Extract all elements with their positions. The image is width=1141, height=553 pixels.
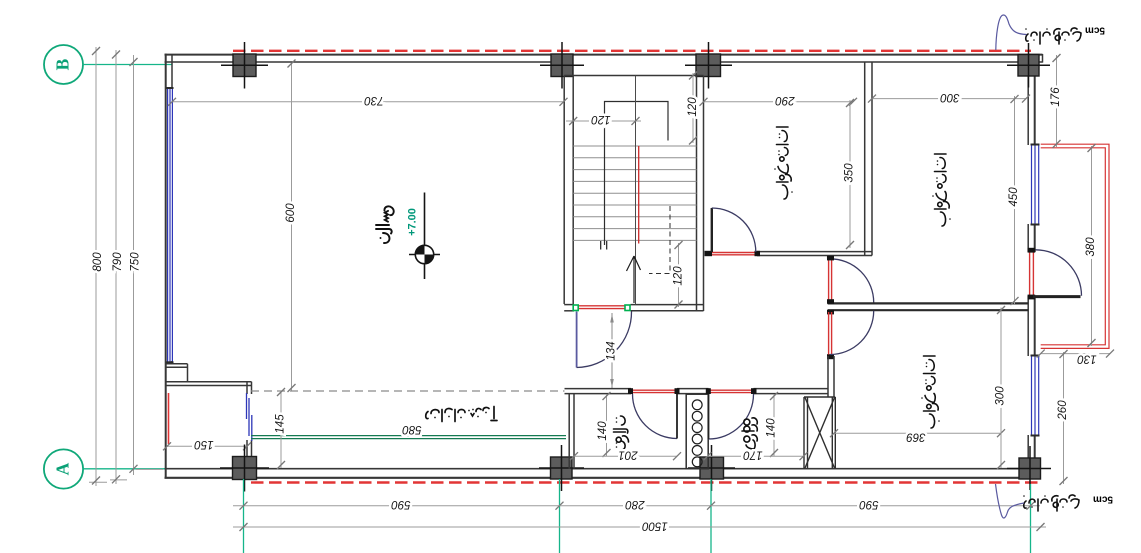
svg-text:800: 800 [92,252,104,272]
svg-text:+7.00: +7.00 [407,208,419,236]
svg-text:140: 140 [766,418,778,438]
svg-text:350: 350 [844,163,856,183]
svg-text:380: 380 [1085,237,1097,257]
svg-text:280: 280 [625,498,646,510]
svg-text:260: 260 [1057,400,1069,421]
svg-text:369: 369 [906,431,926,443]
svg-text:300: 300 [940,91,960,103]
svg-text:A: A [53,462,73,475]
svg-text:730: 730 [364,94,384,106]
svg-text:580: 580 [402,423,422,435]
svg-text:590: 590 [391,498,411,510]
svg-text:134: 134 [606,341,618,360]
svg-text:450: 450 [1008,187,1020,207]
svg-text:150: 150 [194,438,214,450]
svg-text:120: 120 [591,113,611,125]
svg-text:300: 300 [995,386,1007,406]
svg-text:140: 140 [597,421,609,441]
svg-text:B: B [53,58,73,70]
svg-text:750: 750 [130,252,142,272]
svg-text:1500: 1500 [642,519,668,531]
svg-text:600: 600 [285,203,297,223]
svg-text:290: 290 [775,94,796,106]
svg-text:120: 120 [672,266,684,286]
svg-text:130: 130 [1077,353,1097,365]
svg-text:5cm: 5cm [1085,25,1105,36]
svg-text:176: 176 [1050,87,1062,107]
svg-text:170: 170 [743,449,763,461]
svg-text:790: 790 [112,252,124,272]
svg-text:120: 120 [687,97,699,117]
svg-text:5cm: 5cm [1093,494,1113,505]
svg-text:145: 145 [275,414,287,434]
svg-text:590: 590 [859,498,879,510]
svg-text:201: 201 [618,449,638,461]
